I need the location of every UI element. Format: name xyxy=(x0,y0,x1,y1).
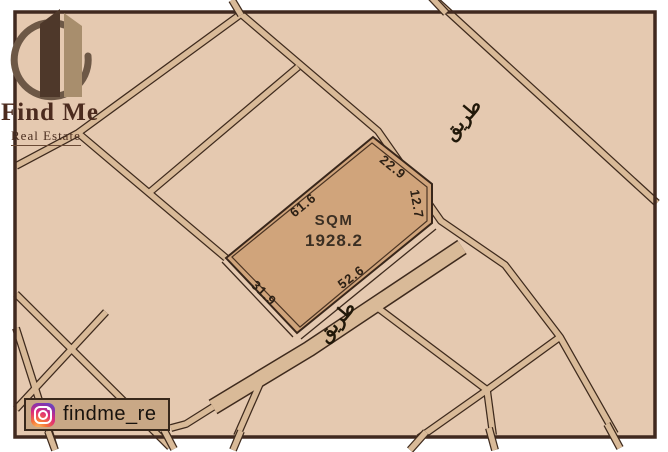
instagram-handle: findme_re xyxy=(63,403,156,426)
brand-title: Find Me xyxy=(1,99,99,127)
instagram-icon xyxy=(31,403,55,427)
area-value-text: 1928.2 xyxy=(305,231,363,251)
brand-logo: Find Me Real Estate xyxy=(0,0,120,150)
brand-subtitle: Real Estate xyxy=(11,128,81,146)
buildings-swoosh-icon xyxy=(4,0,104,104)
instagram-badge: findme_re xyxy=(24,398,170,431)
plot-area-label: SQM 1928.2 xyxy=(305,211,363,251)
area-unit-text: SQM xyxy=(305,211,363,231)
real-estate-plot-map: 61.6 22.9 12.7 52.6 31.9 SQM 1928.2 طريق… xyxy=(0,0,668,452)
